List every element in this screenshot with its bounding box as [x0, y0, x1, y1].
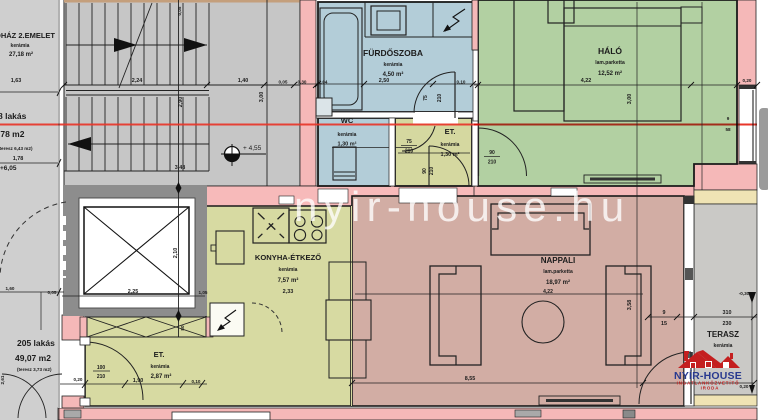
svg-text:kerámia: kerámia — [714, 343, 733, 349]
svg-text:4,22: 4,22 — [581, 78, 592, 84]
svg-text:1,30 m²: 1,30 m² — [338, 141, 357, 148]
svg-text:210: 210 — [429, 167, 435, 176]
svg-text:1,60: 1,60 — [6, 286, 15, 291]
svg-text:2,90: 2,90 — [178, 97, 184, 108]
svg-text:kerámia: kerámia — [384, 62, 403, 68]
svg-text:3,58: 3,58 — [627, 300, 633, 311]
svg-text:+6,05: +6,05 — [0, 165, 17, 172]
svg-text:ET.: ET. — [445, 127, 456, 136]
svg-text:1,90: 1,90 — [133, 378, 144, 384]
svg-text:100: 100 — [97, 365, 106, 371]
svg-text:8 lakás: 8 lakás — [0, 111, 27, 121]
svg-text:0,30: 0,30 — [298, 80, 307, 85]
svg-text:49,07 m2: 49,07 m2 — [15, 353, 51, 363]
svg-text:ŐHÁZ 2.EMELET: ŐHÁZ 2.EMELET — [0, 31, 55, 40]
svg-text:(teresz 3,73 m2): (teresz 3,73 m2) — [17, 367, 52, 372]
svg-text:kerámia: kerámia — [151, 364, 170, 370]
svg-text:,78 m2: ,78 m2 — [0, 129, 25, 139]
svg-text:210: 210 — [97, 374, 106, 380]
svg-text:2,25: 2,25 — [128, 289, 139, 295]
svg-text:kerámia: kerámia — [338, 132, 357, 138]
svg-text:12,52 m²: 12,52 m² — [598, 70, 622, 77]
svg-text:15: 15 — [661, 321, 667, 327]
svg-text:-0,30: -0,30 — [739, 291, 750, 296]
svg-text:9: 9 — [727, 116, 730, 121]
svg-text:210: 210 — [405, 149, 414, 155]
svg-text:0,20: 0,20 — [743, 78, 752, 83]
svg-text:kerámia: kerámia — [279, 267, 298, 273]
svg-text:75: 75 — [406, 139, 412, 145]
svg-text:2,10: 2,10 — [173, 248, 179, 259]
svg-text:kerámia: kerámia — [11, 43, 30, 49]
svg-text:4,50 m²: 4,50 m² — [383, 71, 404, 78]
svg-text:0,05: 0,05 — [48, 290, 57, 295]
svg-text:3,00: 3,00 — [627, 94, 633, 105]
svg-text:lam.parketta: lam.parketta — [595, 60, 625, 66]
svg-text:nyir-house.hu: nyir-house.hu — [294, 183, 630, 230]
svg-text:310: 310 — [723, 310, 732, 316]
svg-text:0,10: 0,10 — [192, 379, 201, 384]
svg-text:3,48: 3,48 — [175, 165, 186, 171]
svg-text:1,63: 1,63 — [11, 78, 22, 84]
svg-text:NAPPALI: NAPPALI — [541, 256, 576, 265]
svg-text:0,10: 0,10 — [457, 80, 466, 85]
svg-text:ET.: ET. — [154, 350, 165, 359]
svg-text:HÁLÓ: HÁLÓ — [598, 45, 622, 56]
svg-text:27,18 m²: 27,18 m² — [9, 51, 33, 58]
svg-text:+ 4,55: + 4,55 — [243, 145, 262, 152]
svg-text:(teresz 6,43 m2): (teresz 6,43 m2) — [0, 146, 33, 151]
svg-text:90: 90 — [422, 168, 428, 174]
svg-text:0,05: 0,05 — [177, 6, 182, 15]
svg-text:kerámia: kerámia — [441, 142, 460, 148]
svg-text:KONYHA-ÉTKEZŐ: KONYHA-ÉTKEZŐ — [255, 253, 321, 262]
svg-text:205 lakás: 205 lakás — [17, 338, 55, 348]
svg-text:3,00: 3,00 — [259, 92, 265, 103]
svg-text:1,40: 1,40 — [238, 78, 249, 84]
svg-text:90: 90 — [489, 150, 495, 156]
svg-text:210: 210 — [437, 94, 443, 103]
svg-text:2,50: 2,50 — [379, 78, 390, 84]
svg-text:18,97 m²: 18,97 m² — [546, 279, 570, 286]
svg-text:2,87 m²: 2,87 m² — [151, 373, 172, 380]
svg-text:0,20: 0,20 — [74, 377, 83, 382]
svg-text:2,33: 2,33 — [283, 289, 294, 295]
svg-text:58: 58 — [725, 127, 731, 132]
svg-text:9: 9 — [663, 310, 666, 316]
svg-text:8,55: 8,55 — [465, 376, 476, 382]
svg-text:1,78: 1,78 — [13, 156, 24, 162]
svg-text:230: 230 — [723, 321, 732, 327]
svg-text:80: 80 — [180, 325, 185, 331]
svg-text:2,61: 2,61 — [0, 375, 5, 384]
svg-text:FÜRDŐSZOBA: FÜRDŐSZOBA — [363, 47, 423, 58]
svg-text:210: 210 — [488, 160, 497, 166]
svg-text:1,05: 1,05 — [199, 290, 208, 295]
svg-text:2,24: 2,24 — [132, 78, 143, 84]
svg-text:TERASZ: TERASZ — [707, 330, 739, 339]
svg-text:lam.parketta: lam.parketta — [543, 269, 573, 275]
svg-text:IRODA: IRODA — [701, 386, 720, 391]
svg-text:0,20: 0,20 — [740, 384, 749, 389]
svg-text:7,57 m²: 7,57 m² — [278, 277, 299, 284]
svg-text:75: 75 — [423, 95, 429, 101]
svg-text:0,05: 0,05 — [279, 80, 288, 85]
